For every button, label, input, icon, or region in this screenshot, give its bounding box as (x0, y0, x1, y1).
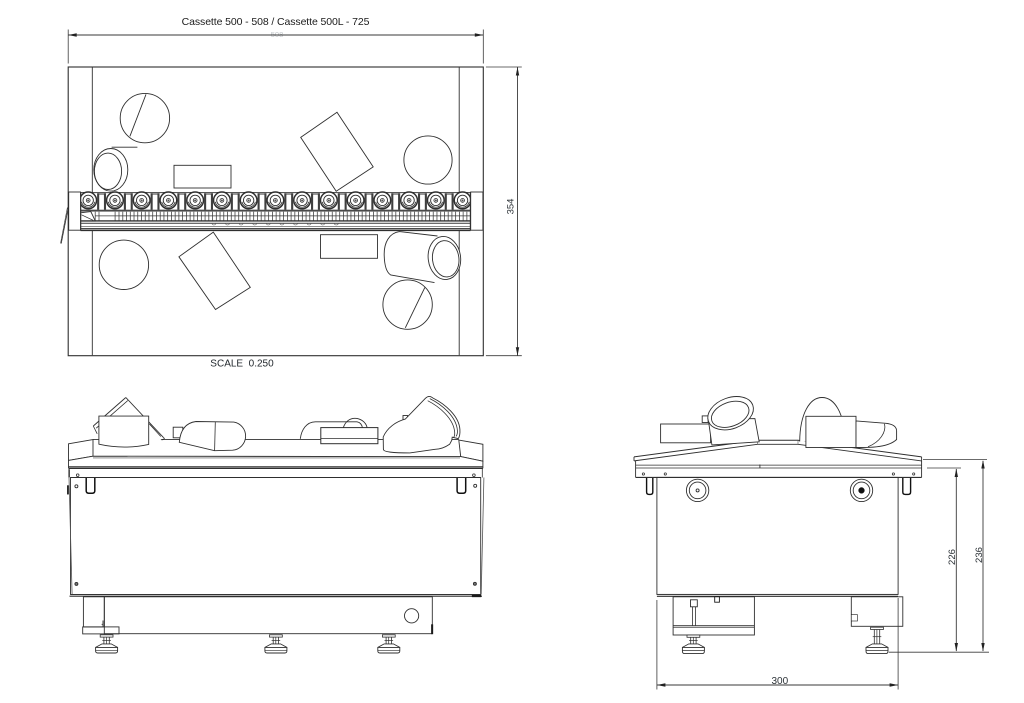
svg-text:508: 508 (271, 30, 284, 39)
svg-text:354: 354 (505, 199, 516, 215)
svg-text:300: 300 (771, 676, 788, 687)
svg-text:236: 236 (974, 547, 985, 563)
svg-text:SCALE 0.250: SCALE 0.250 (210, 359, 274, 370)
svg-text:Cassette 500 - 508 / Cassette: Cassette 500 - 508 / Cassette 500L - 725 (182, 16, 370, 28)
svg-text:226: 226 (947, 549, 958, 565)
